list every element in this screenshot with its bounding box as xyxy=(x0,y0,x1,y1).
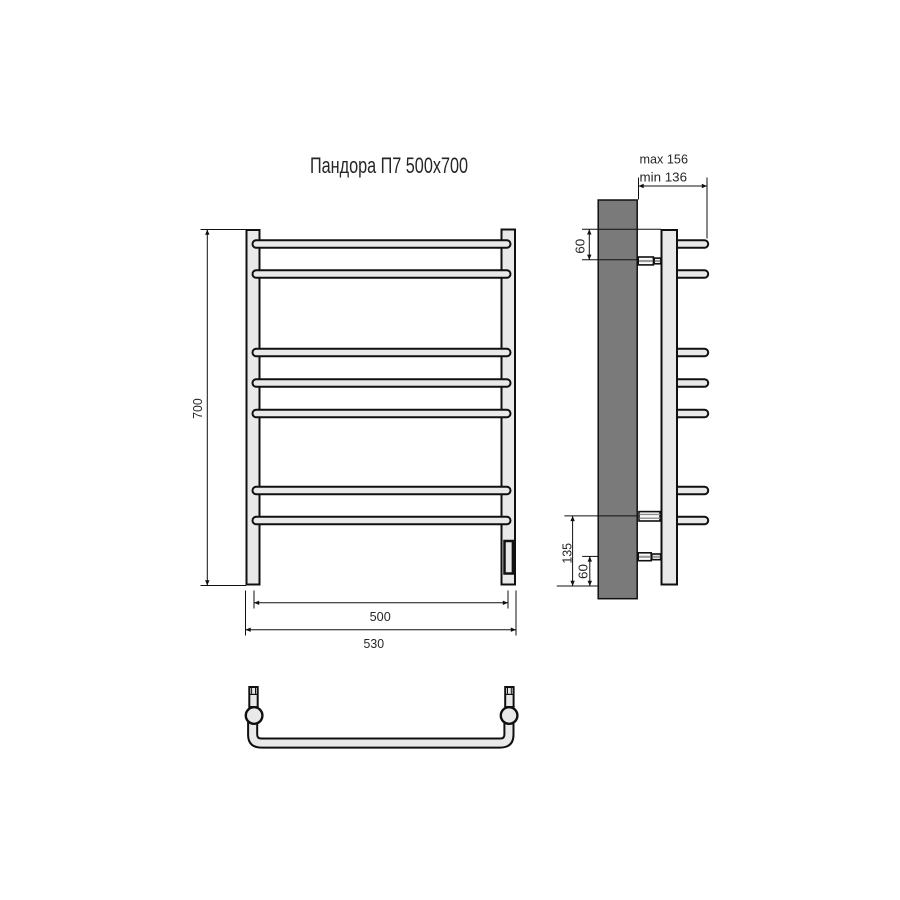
svg-text:Пандора П7 500x700: Пандора П7 500x700 xyxy=(310,153,468,178)
svg-text:60: 60 xyxy=(576,564,591,579)
svg-text:60: 60 xyxy=(573,239,588,254)
svg-text:min 136: min 136 xyxy=(640,170,688,185)
svg-text:700: 700 xyxy=(190,398,205,419)
svg-text:max 156: max 156 xyxy=(640,152,689,167)
svg-text:500: 500 xyxy=(370,609,391,624)
svg-text:135: 135 xyxy=(560,543,575,564)
svg-text:530: 530 xyxy=(364,636,385,651)
